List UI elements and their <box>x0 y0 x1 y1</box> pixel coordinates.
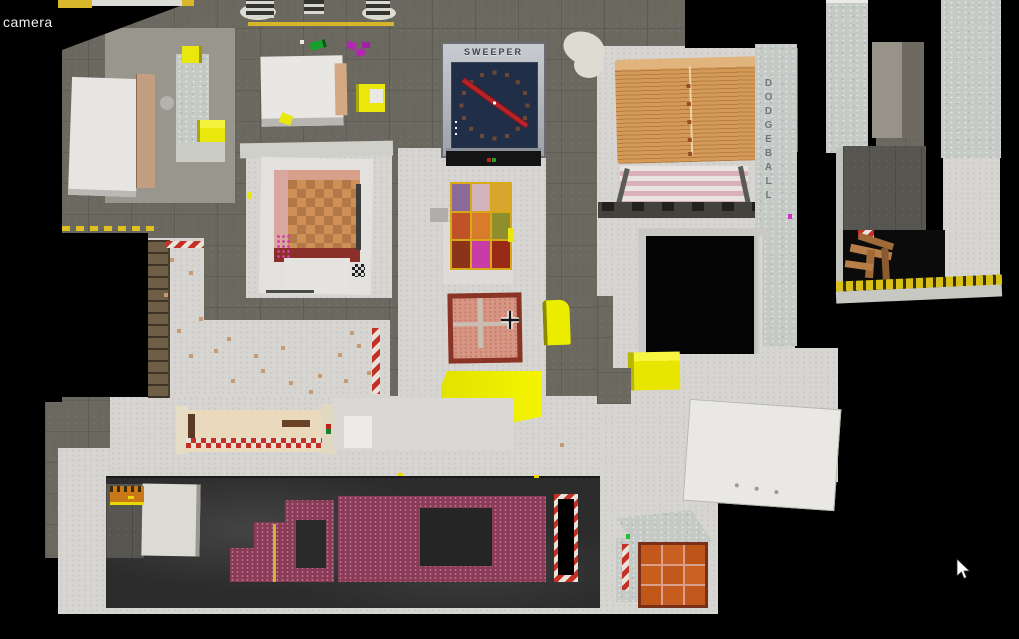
chessboard <box>288 180 360 250</box>
floor-l-room-horizontal <box>148 320 390 398</box>
tall-wall-a <box>826 0 868 153</box>
wall-fragment-h <box>597 368 631 404</box>
yellow-dash-wall <box>62 226 160 231</box>
magenta-cluster <box>276 234 292 260</box>
gray-shelf <box>176 142 225 162</box>
cube-cell <box>663 545 683 564</box>
dresser-knobs <box>686 84 690 88</box>
mini-checkerboard <box>352 264 365 277</box>
quilt-cell <box>492 241 510 268</box>
hazard-strip-top <box>166 241 204 248</box>
crate-cross-v <box>477 298 483 348</box>
quilt-cell <box>452 241 470 268</box>
yellow-chair <box>356 84 385 112</box>
arrow-cursor-icon[interactable] <box>956 558 974 582</box>
door-opening <box>558 499 574 575</box>
quilt-cell <box>452 213 470 240</box>
sweeper-ledge <box>446 148 541 166</box>
cube-cell <box>685 586 705 605</box>
void-right-edge <box>1000 0 1019 639</box>
cube-cell <box>685 545 705 564</box>
cube-hazard-stripe <box>622 544 629 590</box>
cube-cell <box>663 566 683 585</box>
sweeper-sign: SWEEPER <box>443 47 544 57</box>
maroon-steps-hole <box>296 520 326 568</box>
top-white-ledge <box>92 0 182 6</box>
void-left-mid <box>62 233 148 397</box>
void-left-edge3 <box>45 558 58 616</box>
quilt-cell <box>472 213 490 240</box>
camera-mode-label: camera <box>3 14 53 30</box>
pit-hole <box>646 236 758 354</box>
cube-cell <box>641 545 661 564</box>
bed-dark-bar <box>356 184 361 250</box>
floor-debris-dots <box>0 0 4 4</box>
plus-crosshair-icon <box>500 310 520 330</box>
dodgeball-sign: DODGEBALL <box>763 78 774 204</box>
patchwork-quilt <box>450 182 512 270</box>
white-table <box>260 55 343 126</box>
void-left-edge2 <box>45 0 62 402</box>
white-piece <box>344 416 372 448</box>
void-above-column <box>876 0 926 44</box>
floor-left-column <box>58 448 112 612</box>
quilt-cell <box>492 184 510 211</box>
yellow-dot <box>534 475 539 478</box>
cube-cell <box>663 586 683 605</box>
concrete-column <box>872 42 924 138</box>
shuffleboard <box>186 410 326 452</box>
orange-ladder-prop <box>110 486 144 505</box>
bed-shadow-line <box>266 290 314 293</box>
floor-far-right <box>941 156 1001 292</box>
gray-circle-prop <box>160 96 174 110</box>
top-yellow-ledge <box>58 0 92 8</box>
game-viewport[interactable]: SWEEPER <box>0 0 1019 639</box>
yellow-dot <box>128 496 134 499</box>
hazard-door-frame <box>554 494 578 582</box>
rail-guns <box>602 202 760 211</box>
sweeper-panel <box>451 62 538 150</box>
quilt-cell <box>472 241 490 268</box>
ladder-prop <box>366 0 390 18</box>
cube-cell <box>641 566 661 585</box>
magenta-speck <box>788 214 792 219</box>
maroon-doorway <box>420 508 492 566</box>
green-speck <box>626 534 630 539</box>
ladder-prop <box>246 0 274 18</box>
shuffleboard-puck-bar <box>282 420 310 427</box>
nightstand <box>430 208 448 222</box>
dark-alcove <box>843 146 926 234</box>
dresser-divider <box>688 66 692 156</box>
door-dots <box>735 483 739 487</box>
cap-light <box>326 424 331 434</box>
white-speck <box>300 40 304 44</box>
yellow-speck <box>247 192 251 199</box>
wood-ladder-strip <box>148 240 170 398</box>
shuffleboard-checker-strip <box>186 438 326 448</box>
chessboard-frame <box>274 170 360 262</box>
void-bottom-bar <box>0 614 1019 639</box>
void-right-low <box>838 296 1000 639</box>
yellow-rail <box>248 22 394 26</box>
crate-cube-front <box>638 542 708 608</box>
void-left-edge <box>0 0 45 639</box>
top-yellow-ledge2 <box>182 0 194 6</box>
chair-cushion <box>370 89 383 103</box>
void-top-gap <box>685 0 798 48</box>
quilt-cell <box>452 184 470 211</box>
green-light <box>492 158 496 162</box>
yellow-prop-tall <box>542 300 571 346</box>
long-shelf <box>240 141 393 159</box>
ladder-prop <box>304 0 324 14</box>
yellow-block <box>182 46 202 63</box>
wood-strip <box>136 74 155 188</box>
hazard-strip-right <box>372 328 380 394</box>
tall-wall-b <box>941 0 1001 158</box>
white-door-panel <box>683 399 842 511</box>
yellow-dot <box>398 473 403 476</box>
cube-cell <box>641 586 661 605</box>
white-block <box>141 483 200 556</box>
pit-right-wall <box>754 236 762 354</box>
yellow-line-v <box>273 524 276 582</box>
cube-cell <box>685 566 705 585</box>
weapon-rail <box>598 202 763 218</box>
rubble-splat <box>574 52 604 78</box>
yellow-cube <box>628 352 681 391</box>
white-box <box>68 77 140 197</box>
yellow-sliver <box>508 228 513 242</box>
quilt-cell <box>472 184 490 211</box>
void-right-of-dodgeball <box>795 152 838 348</box>
sweeper-clock <box>452 63 537 148</box>
sweeper-cabinet: SWEEPER <box>441 42 546 158</box>
shuffleboard-handle <box>188 414 195 438</box>
bed-sheet <box>284 258 350 292</box>
table-wood-edge <box>335 63 348 115</box>
wood-dresser <box>615 56 765 164</box>
purple-item <box>362 42 370 48</box>
panel-dots <box>455 121 457 123</box>
radiator <box>620 166 748 206</box>
red-light <box>487 158 491 162</box>
